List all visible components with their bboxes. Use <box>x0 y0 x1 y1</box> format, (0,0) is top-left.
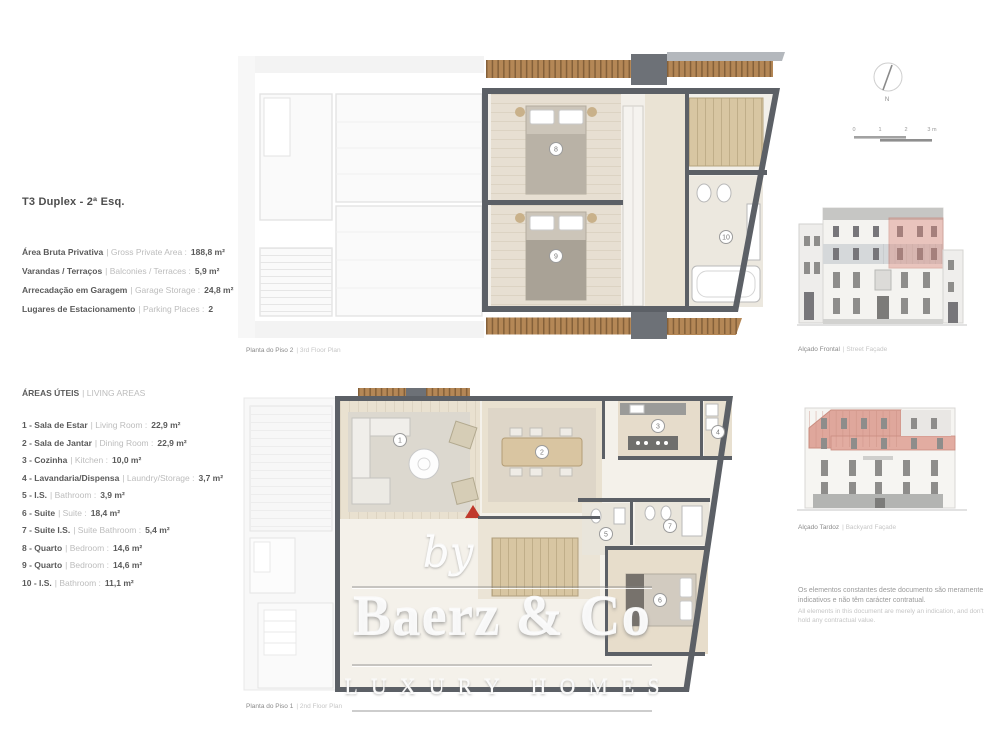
room-label: 8 - Quarto <box>22 543 62 553</box>
room-value: 18,4 m² <box>91 508 120 518</box>
room-number-badge: 2 <box>540 450 544 457</box>
front-elevation-image <box>797 192 967 334</box>
room-number-badge: 3 <box>656 424 660 431</box>
room-label-en: | Dining Room : <box>95 438 153 448</box>
room-label: 4 - Lavandaria/Dispensa <box>22 473 119 483</box>
upper-plan-balcony-bottom <box>486 310 742 339</box>
upper-plan-unit <box>482 88 780 312</box>
room-row: 10 - I.S.| Bathroom :11,1 m² <box>22 575 237 593</box>
scale-tick-label: 0 <box>852 127 855 133</box>
disclaimer: Os elementos constantes deste documento … <box>798 586 984 625</box>
room-label: 1 - Sala de Estar <box>22 420 88 430</box>
rooms-list: 1 - Sala de Estar| Living Room :22,9 m² … <box>22 417 237 592</box>
compass-icon: N <box>868 58 908 104</box>
room-number-badge: 9 <box>554 254 558 261</box>
front-elevation-caption-en: | Street Façade <box>843 346 887 353</box>
room-number-badge: 4 <box>716 430 720 437</box>
back-elevation-caption-en: | Backyard Façade <box>842 524 896 531</box>
room-value: 3,9 m² <box>100 490 125 500</box>
room-row: 5 - I.S.| Bathroom :3,9 m² <box>22 487 237 505</box>
areas-heading-en: | LIVING AREAS <box>82 388 145 398</box>
room-value: 5,4 m² <box>145 525 170 535</box>
room-number-badge: 1 <box>398 438 402 445</box>
upper-plan-caption-pt: Planta do Piso 2 <box>246 347 293 354</box>
toilet-icon <box>645 506 655 520</box>
summary-label-en: | Gross Private Area : <box>106 247 187 257</box>
toilet-icon <box>697 184 711 202</box>
back-elevation-image <box>797 384 967 518</box>
unit-title: T3 Duplex - 2ª Esq. <box>22 196 125 208</box>
room-label-en: | Kitchen : <box>70 455 108 465</box>
scale-tick-label: 1 <box>878 127 881 133</box>
room-label-en: | Laundry/Storage : <box>122 473 194 483</box>
room-row: 4 - Lavandaria/Dispensa| Laundry/Storage… <box>22 470 237 488</box>
kitchen-island-icon <box>628 436 678 450</box>
summary-label-en: | Garage Storage : <box>130 285 200 295</box>
scale-bar: 0 1 2 3 m <box>848 124 944 146</box>
room-label: 5 - I.S. <box>22 490 47 500</box>
room-value: 22,9 m² <box>151 420 180 430</box>
room-label-en: | Bathroom : <box>50 490 96 500</box>
room-value: 14,6 m² <box>113 543 142 553</box>
bidet-icon <box>661 506 671 520</box>
back-elevation-caption: Alçado Tardoz| Backyard Façade <box>798 524 896 531</box>
summary-row: Varandas / Terraços| Balconies / Terrace… <box>22 262 237 281</box>
room-number-badge: 5 <box>604 532 608 539</box>
summary-row: Arrecadação em Garagem| Garage Storage :… <box>22 281 237 300</box>
upper-plan-caption: Planta do Piso 2| 3rd Floor Plan <box>246 347 341 354</box>
room-row: 7 - Suite I.S.| Suite Bathroom :5,4 m² <box>22 522 237 540</box>
disclaimer-pt: Os elementos constantes deste documento … <box>798 586 984 605</box>
room-number-badge: 10 <box>722 235 730 242</box>
summary-value: 2 <box>208 304 213 314</box>
summary-value: 188,8 m² <box>191 247 225 257</box>
basin-icon <box>614 508 625 524</box>
room-number-badge: 6 <box>658 598 662 605</box>
front-elevation-caption: Alçado Frontal| Street Façade <box>798 346 887 353</box>
upper-plan-roof-edge <box>667 52 785 61</box>
room-row: 8 - Quarto| Bedroom :14,6 m² <box>22 540 237 558</box>
room-row: 2 - Sala de Jantar| Dining Room :22,9 m² <box>22 435 237 453</box>
scale-tick-label: 3 m <box>927 127 937 133</box>
round-table-icon <box>409 449 439 479</box>
room-row: 6 - Suite| Suite :18,4 m² <box>22 505 237 523</box>
summary-value: 5,9 m² <box>195 266 220 276</box>
summary-label-en: | Parking Places : <box>138 304 204 314</box>
upper-plan-caption-en: | 3rd Floor Plan <box>296 347 340 354</box>
room-label-en: | Living Room : <box>91 420 148 430</box>
room-label: 10 - I.S. <box>22 578 52 588</box>
lower-floor-plan: 1 2 3 4 5 6 7 <box>230 388 735 700</box>
bidet-icon <box>717 184 731 202</box>
room-value: 3,7 m² <box>198 473 223 483</box>
lower-plan-caption-pt: Planta do Piso 1 <box>246 703 293 710</box>
room-number-badge: 8 <box>554 147 558 154</box>
room-label-en: | Bedroom : <box>65 560 109 570</box>
armchair-icon <box>452 478 479 505</box>
room-label-en: | Suite Bathroom : <box>73 525 141 535</box>
summary-label-pt: Lugares de Estacionamento <box>22 304 135 314</box>
room-row: 9 - Quarto| Bedroom :14,6 m² <box>22 557 237 575</box>
room-label: 6 - Suite <box>22 508 55 518</box>
compass-north-label: N <box>885 97 889 103</box>
room-row: 3 - Cozinha| Kitchen :10,0 m² <box>22 452 237 470</box>
areas-heading-pt: ÁREAS ÚTEIS <box>22 388 79 398</box>
upper-floor-plan: 8 9 10 <box>230 52 785 344</box>
disclaimer-en: All elements in this document are merely… <box>798 607 984 625</box>
room-value: 11,1 m² <box>105 578 134 588</box>
stairs-icon <box>492 538 578 596</box>
washer-icon <box>706 404 718 416</box>
front-elevation-caption-pt: Alçado Frontal <box>798 346 840 353</box>
lower-plan-caption: Planta do Piso 1| 2nd Floor Plan <box>246 703 342 710</box>
scale-tick-label: 2 <box>904 127 907 133</box>
summary-label-en: | Balconies / Terraces : <box>105 266 191 276</box>
room-label-en: | Bathroom : <box>55 578 101 588</box>
summary-label-pt: Área Bruta Privativa <box>22 247 103 257</box>
room-value: 14,6 m² <box>113 560 142 570</box>
summary-label-pt: Varandas / Terraços <box>22 266 102 276</box>
room-label-en: | Suite : <box>58 508 87 518</box>
room-label-en: | Bedroom : <box>65 543 109 553</box>
room-row: 1 - Sala de Estar| Living Room :22,9 m² <box>22 417 237 435</box>
unit-summary: Área Bruta Privativa| Gross Private Area… <box>22 243 237 319</box>
summary-row: Área Bruta Privativa| Gross Private Area… <box>22 243 237 262</box>
room-number-badge: 7 <box>668 524 672 531</box>
summary-label-pt: Arrecadação em Garagem <box>22 285 127 295</box>
unit-highlight-overlay <box>889 218 943 268</box>
shower-icon <box>682 506 702 536</box>
room-label: 2 - Sala de Jantar <box>22 438 92 448</box>
brochure-page: T3 Duplex - 2ª Esq. Área Bruta Privativa… <box>0 0 1000 750</box>
room-label: 3 - Cozinha <box>22 455 67 465</box>
lower-plan-caption-en: | 2nd Floor Plan <box>296 703 342 710</box>
room-label: 9 - Quarto <box>22 560 62 570</box>
back-elevation-caption-pt: Alçado Tardoz <box>798 524 839 531</box>
room-value: 10,0 m² <box>112 455 141 465</box>
room-value: 22,9 m² <box>157 438 186 448</box>
summary-row: Lugares de Estacionamento| Parking Place… <box>22 300 237 319</box>
room-label: 7 - Suite I.S. <box>22 525 70 535</box>
watermark-rule-bottom <box>352 710 652 712</box>
areas-heading: ÁREAS ÚTEIS| LIVING AREAS <box>22 388 148 398</box>
